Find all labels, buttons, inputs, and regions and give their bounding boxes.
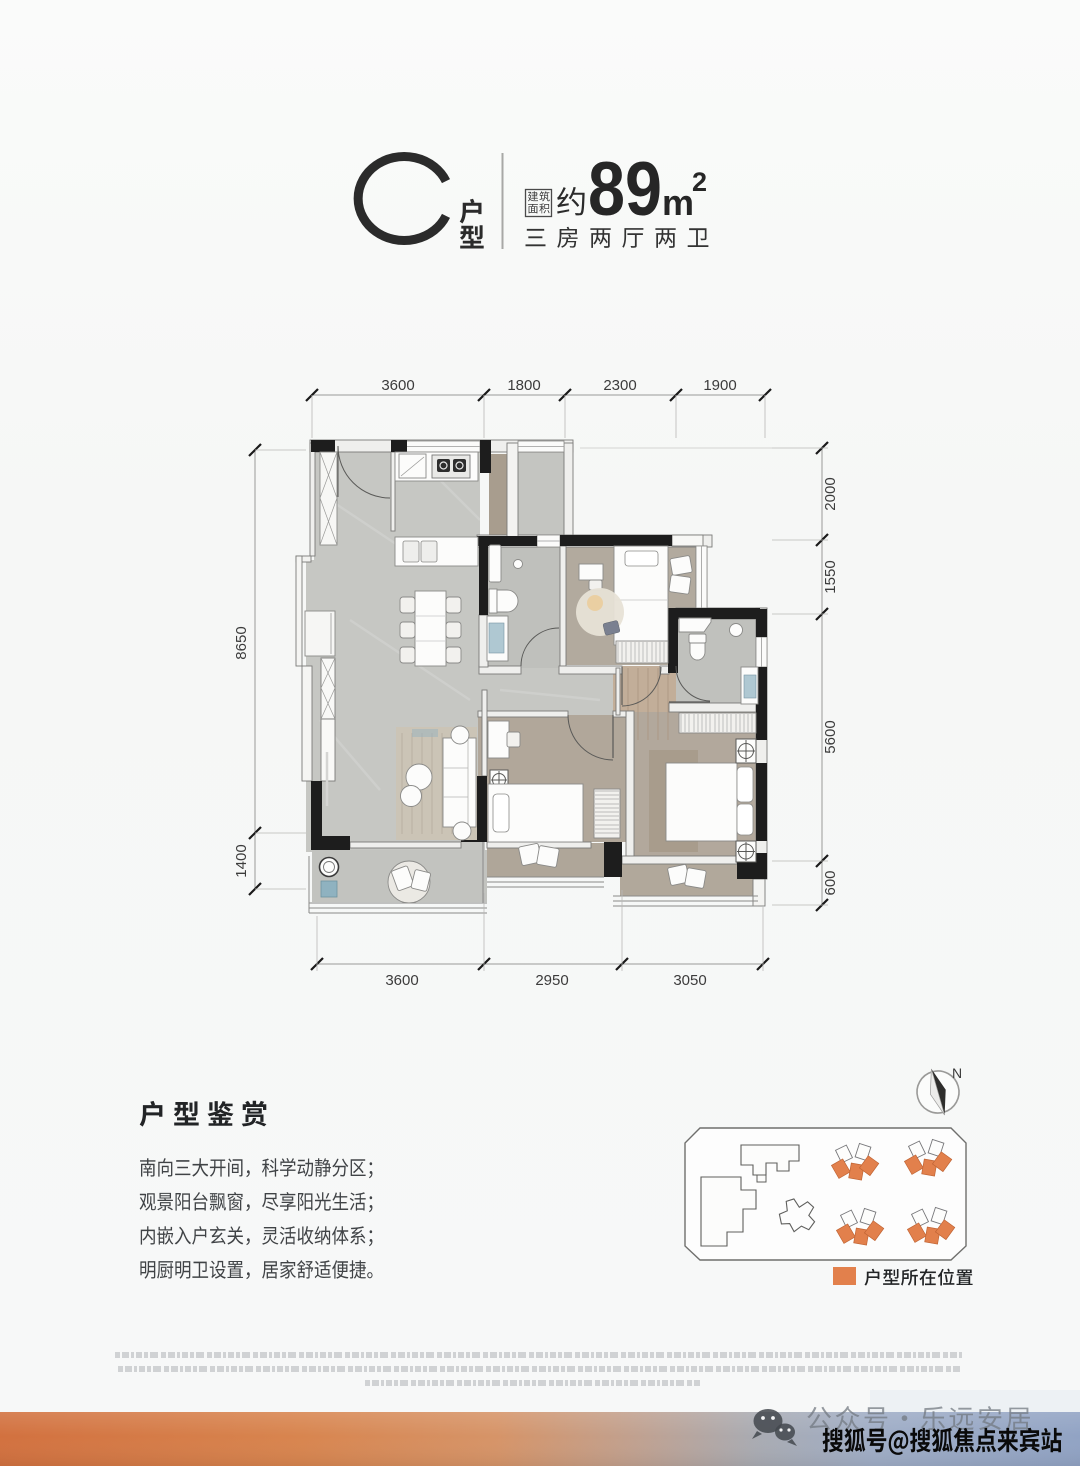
- svg-text:2300: 2300: [603, 377, 636, 394]
- svg-text:1900: 1900: [703, 377, 736, 394]
- svg-text:2000: 2000: [822, 477, 839, 510]
- svg-text:m: m: [662, 182, 694, 223]
- svg-text:2950: 2950: [535, 972, 568, 989]
- svg-text:2: 2: [692, 167, 707, 197]
- svg-text:3600: 3600: [385, 972, 418, 989]
- svg-text:5600: 5600: [822, 720, 839, 753]
- svg-text:N: N: [952, 1065, 962, 1081]
- svg-text:1800: 1800: [507, 377, 540, 394]
- svg-text:3050: 3050: [673, 972, 706, 989]
- svg-text:1400: 1400: [233, 844, 250, 877]
- svg-text:600: 600: [822, 870, 839, 895]
- svg-text:8650: 8650: [233, 626, 250, 659]
- svg-text:3600: 3600: [381, 377, 414, 394]
- svg-text:89: 89: [588, 147, 662, 232]
- svg-text:1550: 1550: [822, 560, 839, 593]
